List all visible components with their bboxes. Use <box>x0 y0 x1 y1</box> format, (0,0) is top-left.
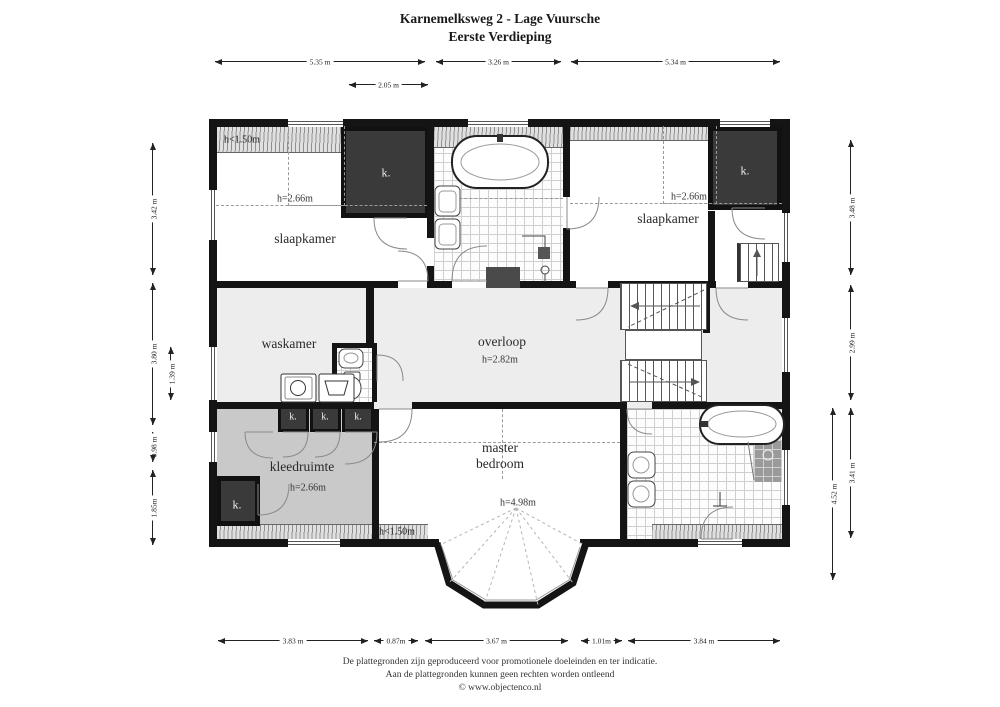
dimension-line: 2.99 m <box>850 285 851 400</box>
dimension-value: 5.35 m <box>307 57 334 66</box>
room-label-landing: overloop <box>478 334 526 350</box>
dimension-line: 4.52 m <box>832 408 833 580</box>
dimension-value: 1.01m <box>589 636 614 645</box>
disclaimer-line2: Aan de plattegronden kunnen geen rechten… <box>0 669 1000 682</box>
dimension-line: 3.80 m <box>152 283 153 425</box>
dimension-line: 3.26 m <box>436 61 561 62</box>
dimension-line: 0.98 m <box>152 432 153 462</box>
doorstep-mat <box>486 267 520 288</box>
dimension-value: 3.26 m <box>485 57 512 66</box>
shower2-icon <box>713 442 773 506</box>
dimension-line: 2.05 m <box>349 84 428 85</box>
closet-label: k. <box>321 412 329 423</box>
floorplan-page: Karnemelksweg 2 - Lage Vuursche Eerste V… <box>0 0 1000 707</box>
dimension-line: 3.42 m <box>152 143 153 275</box>
dimension-line: 3.84 m <box>628 640 780 641</box>
dimension-value: 3.42 m <box>149 196 158 223</box>
disclaimer: De plattegronden zijn geproduceerd voor … <box>0 656 1000 694</box>
dimension-value: 1.39 m <box>167 360 176 387</box>
dimension-value: 0.87m <box>384 636 409 645</box>
bathtub-icon <box>452 134 548 188</box>
dimension-value: 1.85m <box>149 495 158 520</box>
bathtub2-icon <box>700 405 784 444</box>
room-height-label: h=4.98m <box>500 498 536 509</box>
room-height-label: h=2.82m <box>482 355 518 366</box>
stairs-direction <box>628 252 757 398</box>
dimension-line: 3.41 m <box>850 408 851 538</box>
room-label-dressing: kleedruimte <box>270 459 334 475</box>
bay-window <box>437 543 586 605</box>
dimension-line: 3.83 m <box>218 640 368 641</box>
closet-label: k. <box>741 164 750 179</box>
washbasin-icon <box>435 186 460 249</box>
washbasin2-icon <box>628 452 655 507</box>
room-height-label: h=2.66m <box>277 194 313 205</box>
closet-label: k. <box>233 498 242 513</box>
dimension-value: 3.83 m <box>280 636 307 645</box>
room-height-label: h=2.66m <box>290 483 326 494</box>
room-label-master: master <box>482 440 518 456</box>
dimension-value: 3.67 m <box>483 636 510 645</box>
room-label-master-2: bedroom <box>476 456 524 472</box>
attic-height-label: h<1.50m <box>224 135 260 146</box>
disclaimer-line1: De plattegronden zijn geproduceerd voor … <box>0 656 1000 669</box>
stairs-arrowheads <box>630 249 761 386</box>
dimension-value: 4.52 m <box>829 481 838 508</box>
washer-dryer-icon <box>281 374 354 402</box>
room-label-bedroom-left: slaapkamer <box>274 231 335 247</box>
dimension-line: 1.85m <box>152 470 153 545</box>
dimension-value: 3.84 m <box>691 636 718 645</box>
dimension-value: 2.05 m <box>375 80 402 89</box>
shower-icon <box>522 236 550 282</box>
attic-height-label: h<1.50m <box>379 527 415 538</box>
closet-label: k. <box>354 412 362 423</box>
dimension-line: 5.34 m <box>571 61 780 62</box>
dimension-line: 5.35 m <box>215 61 425 62</box>
room-label-laundry: waskamer <box>262 336 317 352</box>
room-height-label: h=2.66m <box>671 192 707 203</box>
dimension-line: 3.48 m <box>850 140 851 275</box>
dimension-value: 3.41 m <box>847 460 856 487</box>
closet-label: k. <box>289 412 297 423</box>
copyright: © www.objectenco.nl <box>0 682 1000 695</box>
room-label-bedroom-right: slaapkamer <box>637 211 698 227</box>
dimension-value: 3.48 m <box>847 194 856 221</box>
dimension-value: 5.34 m <box>662 57 689 66</box>
dimension-value: 2.99 m <box>847 329 856 356</box>
dimension-line: 3.67 m <box>425 640 568 641</box>
dimension-line: 1.39 m <box>170 347 171 400</box>
dimension-value: 0.98 m <box>149 434 158 461</box>
dimension-value: 3.80 m <box>149 341 158 368</box>
closet-label: k. <box>382 166 391 181</box>
dimension-line: 0.87m <box>374 640 418 641</box>
dimension-line: 1.01m <box>581 640 622 641</box>
